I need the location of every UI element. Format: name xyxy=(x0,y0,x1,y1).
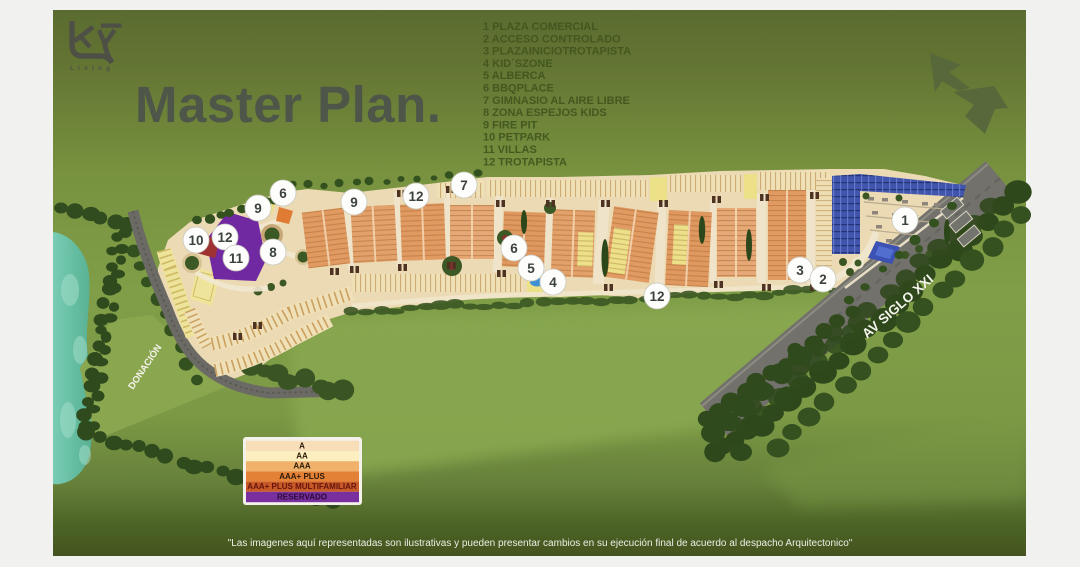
svg-text:11 VILLAS: 11 VILLAS xyxy=(483,144,537,156)
svg-text:AAA+ PLUS: AAA+ PLUS xyxy=(279,472,325,481)
svg-text:7: 7 xyxy=(460,178,468,193)
svg-text:RESERVADO: RESERVADO xyxy=(277,492,327,501)
svg-text:3: 3 xyxy=(796,263,804,278)
svg-text:5 ALBERCA: 5 ALBERCA xyxy=(483,70,546,82)
svg-text:12: 12 xyxy=(649,289,664,304)
svg-text:9: 9 xyxy=(350,195,358,210)
svg-text:12 TROTAPISTA: 12 TROTAPISTA xyxy=(483,156,567,168)
svg-text:2 ACCESO CONTROLADO: 2 ACCESO CONTROLADO xyxy=(483,33,621,45)
svg-text:4 KID´SZONE: 4 KID´SZONE xyxy=(483,58,553,70)
svg-text:9 FIRE PIT: 9 FIRE PIT xyxy=(483,119,538,131)
svg-text:5: 5 xyxy=(527,261,535,276)
svg-text:8 ZONA ESPEJOS KIDS: 8 ZONA ESPEJOS KIDS xyxy=(483,107,607,119)
svg-text:AA: AA xyxy=(296,452,308,461)
svg-text:6: 6 xyxy=(510,241,518,256)
svg-text:"Las imagenes aquí representad: "Las imagenes aquí representadas son ilu… xyxy=(228,538,853,549)
svg-text:7 GIMNASIO AL AIRE LIBRE: 7 GIMNASIO AL AIRE LIBRE xyxy=(483,95,630,107)
svg-text:6: 6 xyxy=(279,186,287,201)
svg-text:AAA+ PLUS MULTIFAMILIAR: AAA+ PLUS MULTIFAMILIAR xyxy=(247,482,357,491)
svg-text:AAA: AAA xyxy=(293,462,311,471)
svg-text:4: 4 xyxy=(549,275,557,290)
svg-text:9: 9 xyxy=(254,201,262,216)
svg-text:2: 2 xyxy=(819,272,827,287)
svg-text:12: 12 xyxy=(217,230,232,245)
svg-text:Master Plan.: Master Plan. xyxy=(135,76,441,133)
svg-text:3 PLAZAINICIOTROTAPISTA: 3 PLAZAINICIOTROTAPISTA xyxy=(483,46,631,58)
svg-text:10: 10 xyxy=(188,233,203,248)
svg-text:6 BBQPLACE: 6 BBQPLACE xyxy=(483,83,554,95)
svg-text:A: A xyxy=(299,441,305,450)
svg-text:10 PETPARK: 10 PETPARK xyxy=(483,132,550,144)
svg-text:12: 12 xyxy=(408,189,423,204)
svg-text:1: 1 xyxy=(901,213,909,228)
svg-text:8: 8 xyxy=(269,245,277,260)
svg-text:Living: Living xyxy=(70,65,114,72)
svg-text:1 PLAZA COMERCIAL: 1 PLAZA COMERCIAL xyxy=(483,21,598,33)
svg-text:11: 11 xyxy=(229,251,244,266)
